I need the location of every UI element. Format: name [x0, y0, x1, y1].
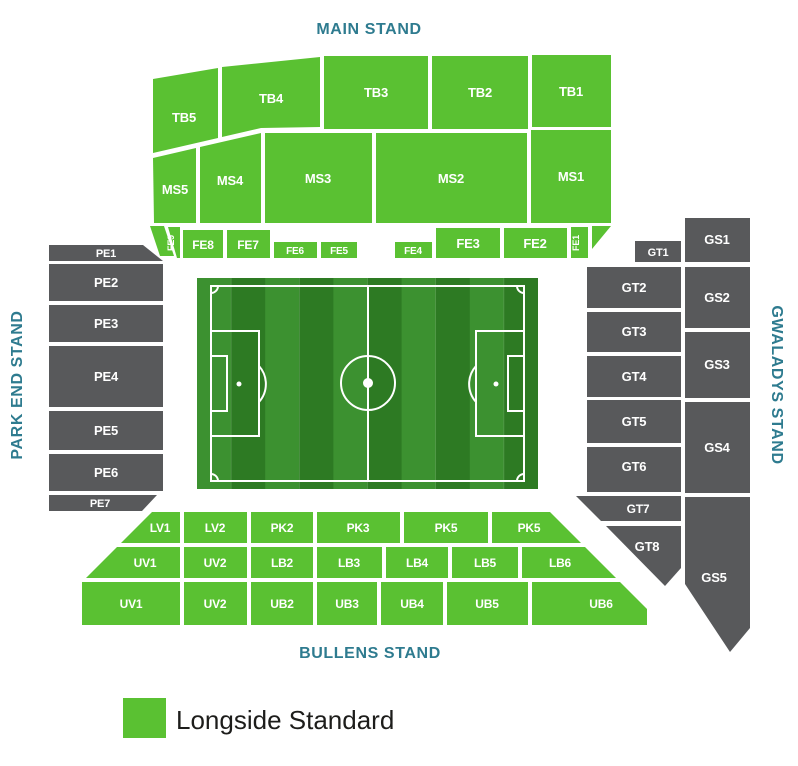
- block-lv2-label: LV2: [205, 521, 226, 535]
- block-gt4-label: GT4: [622, 369, 648, 384]
- block-ub3-label: UB3: [335, 597, 359, 611]
- block-gt3-label: GT3: [622, 324, 647, 339]
- block-ms3-label: MS3: [305, 171, 331, 186]
- block-pk3-label: PK3: [347, 521, 370, 535]
- legend-swatch-longside-standard: [123, 698, 166, 738]
- bullens-stand-heading: BULLENS STAND: [299, 645, 441, 662]
- block-tb4-label: TB4: [259, 91, 284, 106]
- corner-wedge-right: [592, 226, 611, 249]
- block-fe9-label: FE9: [166, 235, 176, 251]
- block-lb3-label: LB3: [338, 556, 361, 570]
- park-end-stand-heading: PARK END STAND: [9, 310, 26, 459]
- pitch-centre-spot: [363, 378, 373, 388]
- block-ms5-label: MS5: [162, 182, 188, 197]
- block-uv1-lower-label: UV1: [120, 597, 143, 611]
- block-fe2-label: FE2: [523, 236, 546, 251]
- block-gs2-label: GS2: [704, 290, 729, 305]
- block-ms1-label: MS1: [558, 169, 584, 184]
- legend-label-longside-standard: Longside Standard: [176, 705, 394, 735]
- block-gt8[interactable]: [606, 526, 681, 586]
- block-ms4-label: MS4: [217, 173, 244, 188]
- block-pe6-label: PE6: [94, 465, 118, 480]
- block-gs5-label: GS5: [701, 570, 726, 585]
- stadium-seating-map: MAIN STAND BULLENS STAND PARK END STAND …: [0, 0, 798, 766]
- block-pe5-label: PE5: [94, 423, 118, 438]
- block-gt6-label: GT6: [622, 459, 647, 474]
- block-fe4-label: FE4: [404, 246, 422, 257]
- bullens-stand-group: LV1 LV2 PK2 PK3 PK5 PK5 UV1 UV2 LB2 LB3 …: [82, 512, 647, 625]
- block-gt5-label: GT5: [622, 414, 647, 429]
- block-gt8-label: GT8: [635, 539, 660, 554]
- block-ub2-label: UB2: [270, 597, 294, 611]
- block-pe3-label: PE3: [94, 316, 118, 331]
- block-ub5-label: UB5: [475, 597, 499, 611]
- block-pe2-label: PE2: [94, 275, 118, 290]
- block-gt1-label: GT1: [648, 247, 669, 259]
- pitch-right-penalty-spot: [494, 382, 499, 387]
- block-tb3-label: TB3: [364, 85, 388, 100]
- pitch: [197, 278, 538, 489]
- block-fe8-label: FE8: [192, 238, 214, 252]
- block-fe7-label: FE7: [237, 238, 259, 252]
- main-stand-heading: MAIN STAND: [316, 21, 421, 38]
- block-tb5-label: TB5: [172, 110, 196, 125]
- block-tb1-label: TB1: [559, 84, 583, 99]
- block-lb6-label: LB6: [549, 556, 572, 570]
- block-lb2-label: LB2: [271, 556, 294, 570]
- block-fe1-label: FE1: [571, 235, 581, 251]
- block-uv2-lower-label: UV2: [204, 597, 227, 611]
- block-lb5-label: LB5: [474, 556, 497, 570]
- block-pe7-label: PE7: [90, 498, 110, 510]
- pitch-left-penalty-spot: [237, 382, 242, 387]
- block-fe3-label: FE3: [456, 236, 479, 251]
- block-fe6-label: FE6: [286, 246, 304, 257]
- block-gs1-label: GS1: [704, 232, 729, 247]
- block-uv1-upper-label: UV1: [134, 556, 157, 570]
- block-ub4-label: UB4: [400, 597, 424, 611]
- block-pk2-label: PK2: [271, 521, 294, 535]
- block-tb2-label: TB2: [468, 85, 492, 100]
- block-pe4-label: PE4: [94, 369, 119, 384]
- block-lv1-label: LV1: [150, 521, 171, 535]
- block-gs4-label: GS4: [704, 440, 730, 455]
- block-gs3-label: GS3: [704, 357, 729, 372]
- block-fe5-label: FE5: [330, 246, 348, 257]
- block-pk5-label: PK5: [518, 521, 541, 535]
- block-pe1-label: PE1: [96, 248, 116, 260]
- block-ub6-label: UB6: [589, 597, 613, 611]
- stadium-map-svg: MAIN STAND BULLENS STAND PARK END STAND …: [0, 0, 798, 766]
- main-stand-group: TB5 TB4 TB3 TB2 TB1 MS5 MS4 MS3 MS2 MS1 …: [150, 55, 611, 258]
- block-pk4-label: PK5: [435, 521, 458, 535]
- block-gt2-label: GT2: [622, 280, 647, 295]
- block-uv2-upper-label: UV2: [204, 556, 227, 570]
- block-ms2-label: MS2: [438, 171, 464, 186]
- park-end-stand-group: PE1 PE2 PE3 PE4 PE5 PE6 PE7: [49, 245, 163, 511]
- legend: Longside Standard: [123, 698, 394, 738]
- block-gt7-label: GT7: [627, 502, 650, 516]
- gwaladys-stand-heading: GWALADYS STAND: [768, 305, 785, 464]
- block-lb4-label: LB4: [406, 556, 429, 570]
